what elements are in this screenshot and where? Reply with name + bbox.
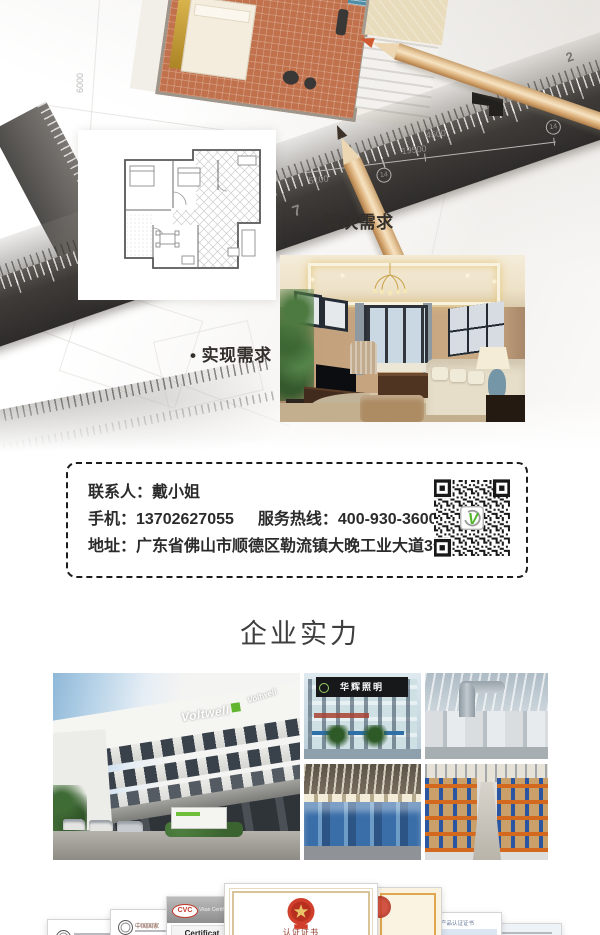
certificate-card [374,887,442,935]
ruler-number: 2 [564,49,576,66]
dimension-label: 4500 [425,128,446,140]
entrance-sign [171,807,227,829]
lr-wall-frame [322,297,348,332]
national-certificate-card: 认证证书 [224,883,378,935]
brand-logo-icon [319,683,329,693]
factory-building-photo: Voltwell Voltwell [53,673,300,860]
contact-hotline: 服务热线：400-930-3600 [258,511,438,528]
contact-address: 地址：广东省佛山市顺德区勒流镇大晚工业大道3号 [88,532,449,556]
voltwell-green-mark [231,702,241,712]
machinery [425,711,548,747]
parked-car [89,820,113,831]
parked-car [63,819,85,830]
certificate-caption: 中国国家 [135,921,159,930]
lr-cushion [468,371,484,384]
lr-plant [280,289,314,401]
living-room-photo [280,255,525,422]
qr-logo-letter: V [468,511,480,528]
certificate-card [493,923,562,935]
lr-lamp-shade [476,347,510,369]
lr-side-table [486,395,525,422]
ccc-logo-icon [56,930,71,935]
axis-bubble: 14 [545,119,562,136]
blue-machines [304,802,421,846]
qr-code: V [434,479,510,557]
slogan-banner [314,713,369,718]
warehouse-racks-photo [425,764,548,860]
window-strip [304,794,421,802]
huahui-building-photo: 华辉照明 [304,673,421,759]
caption-solve-needs: • 解决需求 [312,208,394,233]
lr-cushion [432,367,448,380]
contact-phone-line: 手机：13702627055服务热线：400-930-3600 [88,505,438,529]
contact-card: 联系人：戴小姐 手机：13702627055服务热线：400-930-3600 … [66,462,528,578]
qr-center-logo: V [461,507,484,530]
pencil-lead [358,32,375,49]
storage-rack [425,778,477,852]
dimension-label: 19500 [401,143,427,156]
parked-car [117,821,143,832]
hero-blueprint-photo: 6000 2 [0,0,600,460]
section-title: 企业实力 [0,612,600,651]
certificate-title: 认证证书 [225,927,377,935]
floorplan-drawing [78,130,276,300]
workshop-equipment-photo [425,673,548,759]
voltwell-corner-sign: Voltwell [246,687,277,705]
lr-cushion [450,369,466,382]
certificate-caption: 产品认证证书 [441,919,474,927]
chandelier-icon [368,263,412,301]
lr-ottoman [360,395,424,422]
national-emblem-icon [286,896,316,930]
ground [304,749,421,759]
pencil-lead [331,122,349,140]
cvc-logo: CVC [172,904,198,918]
contact-name: 联系人：戴小姐 [88,478,200,502]
roof-trusses [304,764,421,798]
plan-bed [181,0,257,80]
voltwell-sign: Voltwell [180,701,241,724]
floor [304,846,421,860]
storage-rack [497,778,548,852]
ccc-logo-icon [118,920,133,935]
axis-bubble: 14 [376,167,393,184]
certificate-card: 产品认证证书 [435,912,502,935]
product-detail-page: 6000 2 [0,0,600,935]
huahui-sign: 华辉照明 [316,677,408,697]
caption-realize-needs: • 实现需求 [190,341,272,366]
dimension-label: 5100 [308,173,329,185]
lr-armchair [350,341,377,374]
steel-roof [425,673,548,713]
contact-mobile: 手机：13702627055 [88,511,234,528]
production-line-photo [304,764,421,860]
floorplan-card [78,130,276,300]
floor [425,747,548,759]
ruler-number: 7 [290,202,303,221]
duct-pipe [459,683,475,717]
dimension-label: 6000 [75,73,85,93]
blue-band [440,929,497,935]
